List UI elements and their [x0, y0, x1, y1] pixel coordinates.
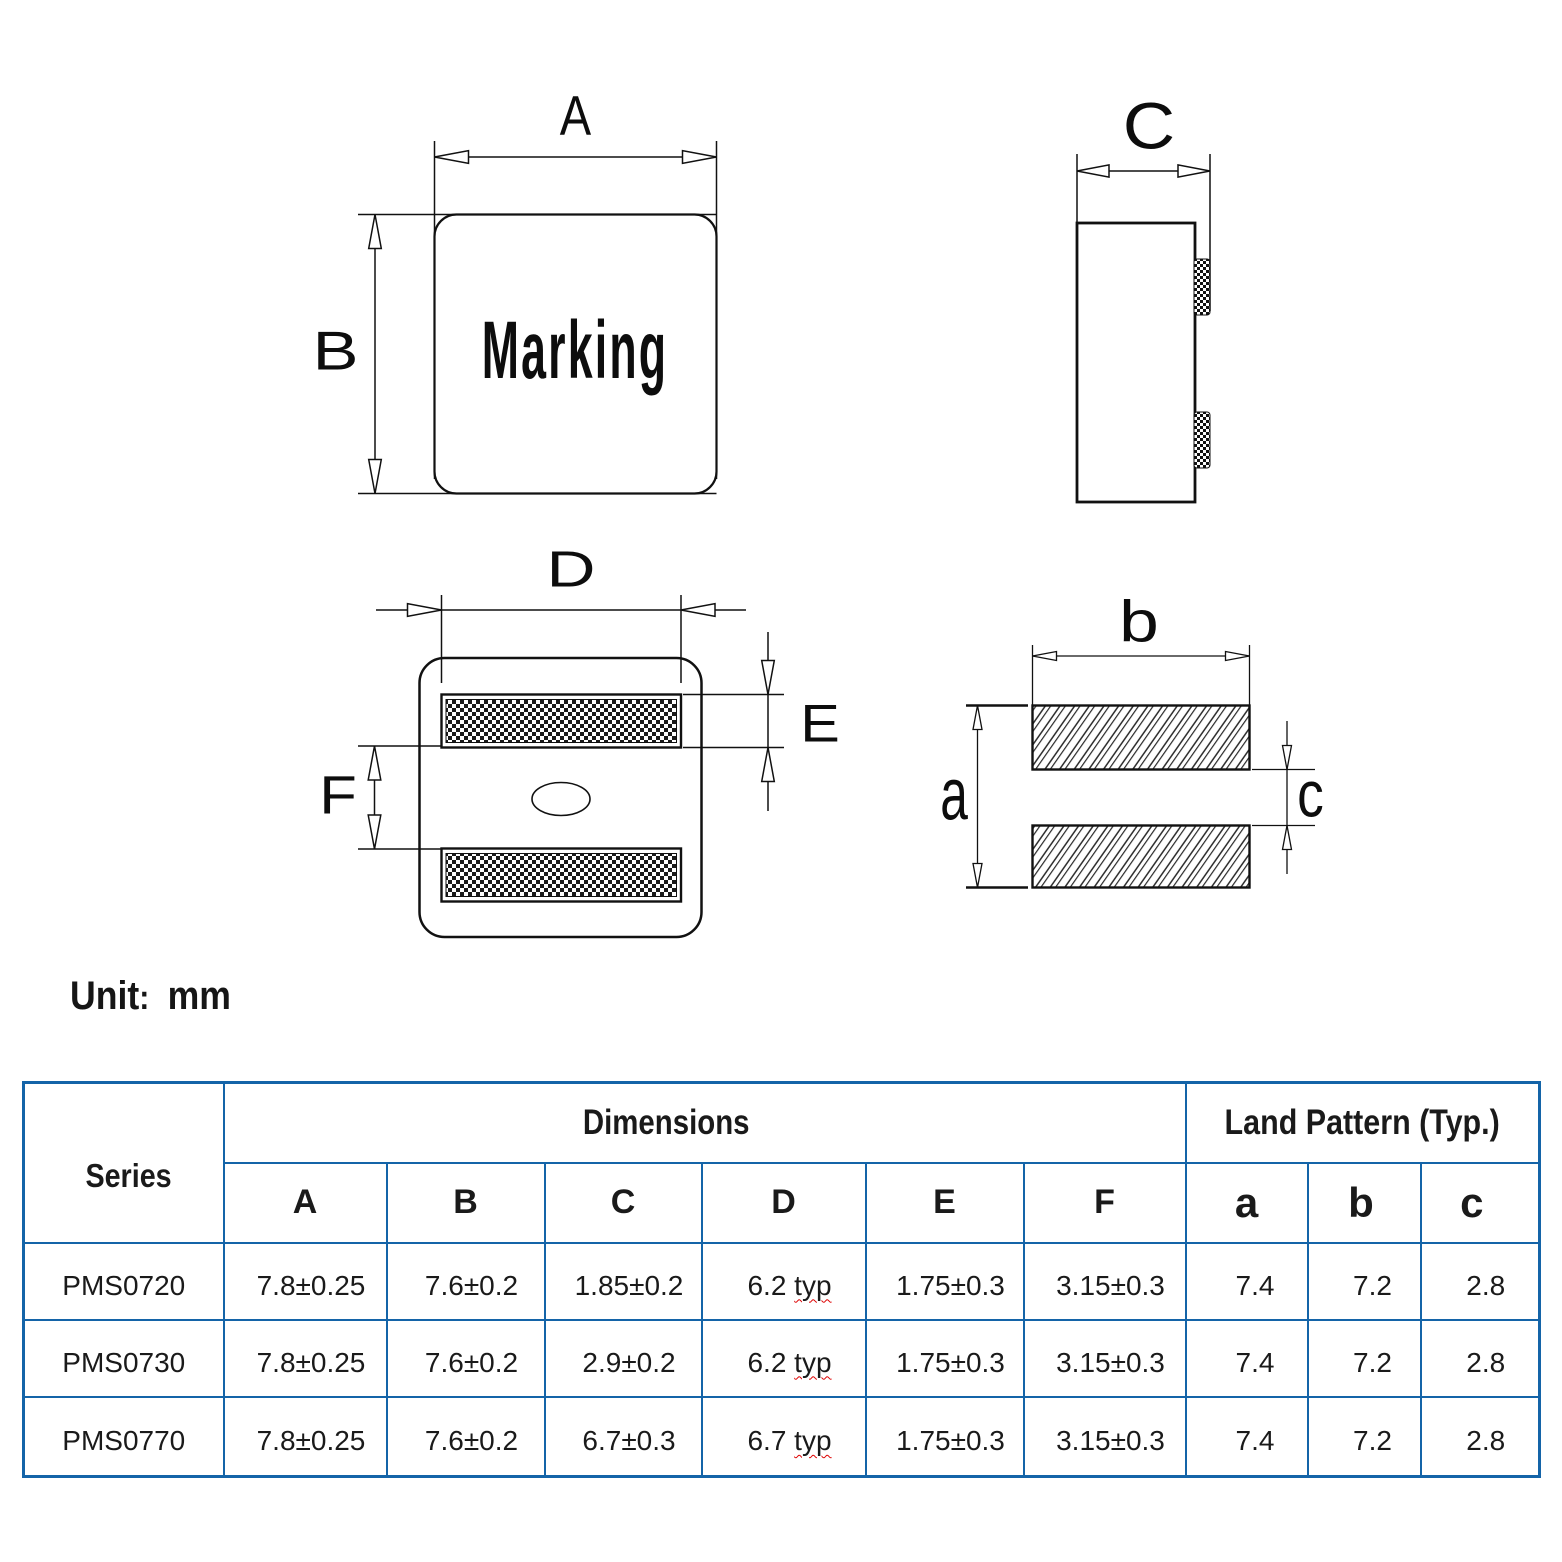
svg-text:E: E — [800, 694, 840, 753]
svg-text:b: b — [1119, 589, 1159, 654]
svg-text:Marking: Marking — [482, 303, 669, 395]
svg-text:A: A — [560, 84, 592, 147]
svg-text:D: D — [547, 541, 596, 598]
svg-text:a: a — [940, 754, 968, 836]
svg-text:F: F — [319, 766, 357, 825]
svg-text:C: C — [1123, 89, 1175, 163]
svg-text:B: B — [313, 321, 359, 382]
svg-text:c: c — [1297, 757, 1324, 830]
